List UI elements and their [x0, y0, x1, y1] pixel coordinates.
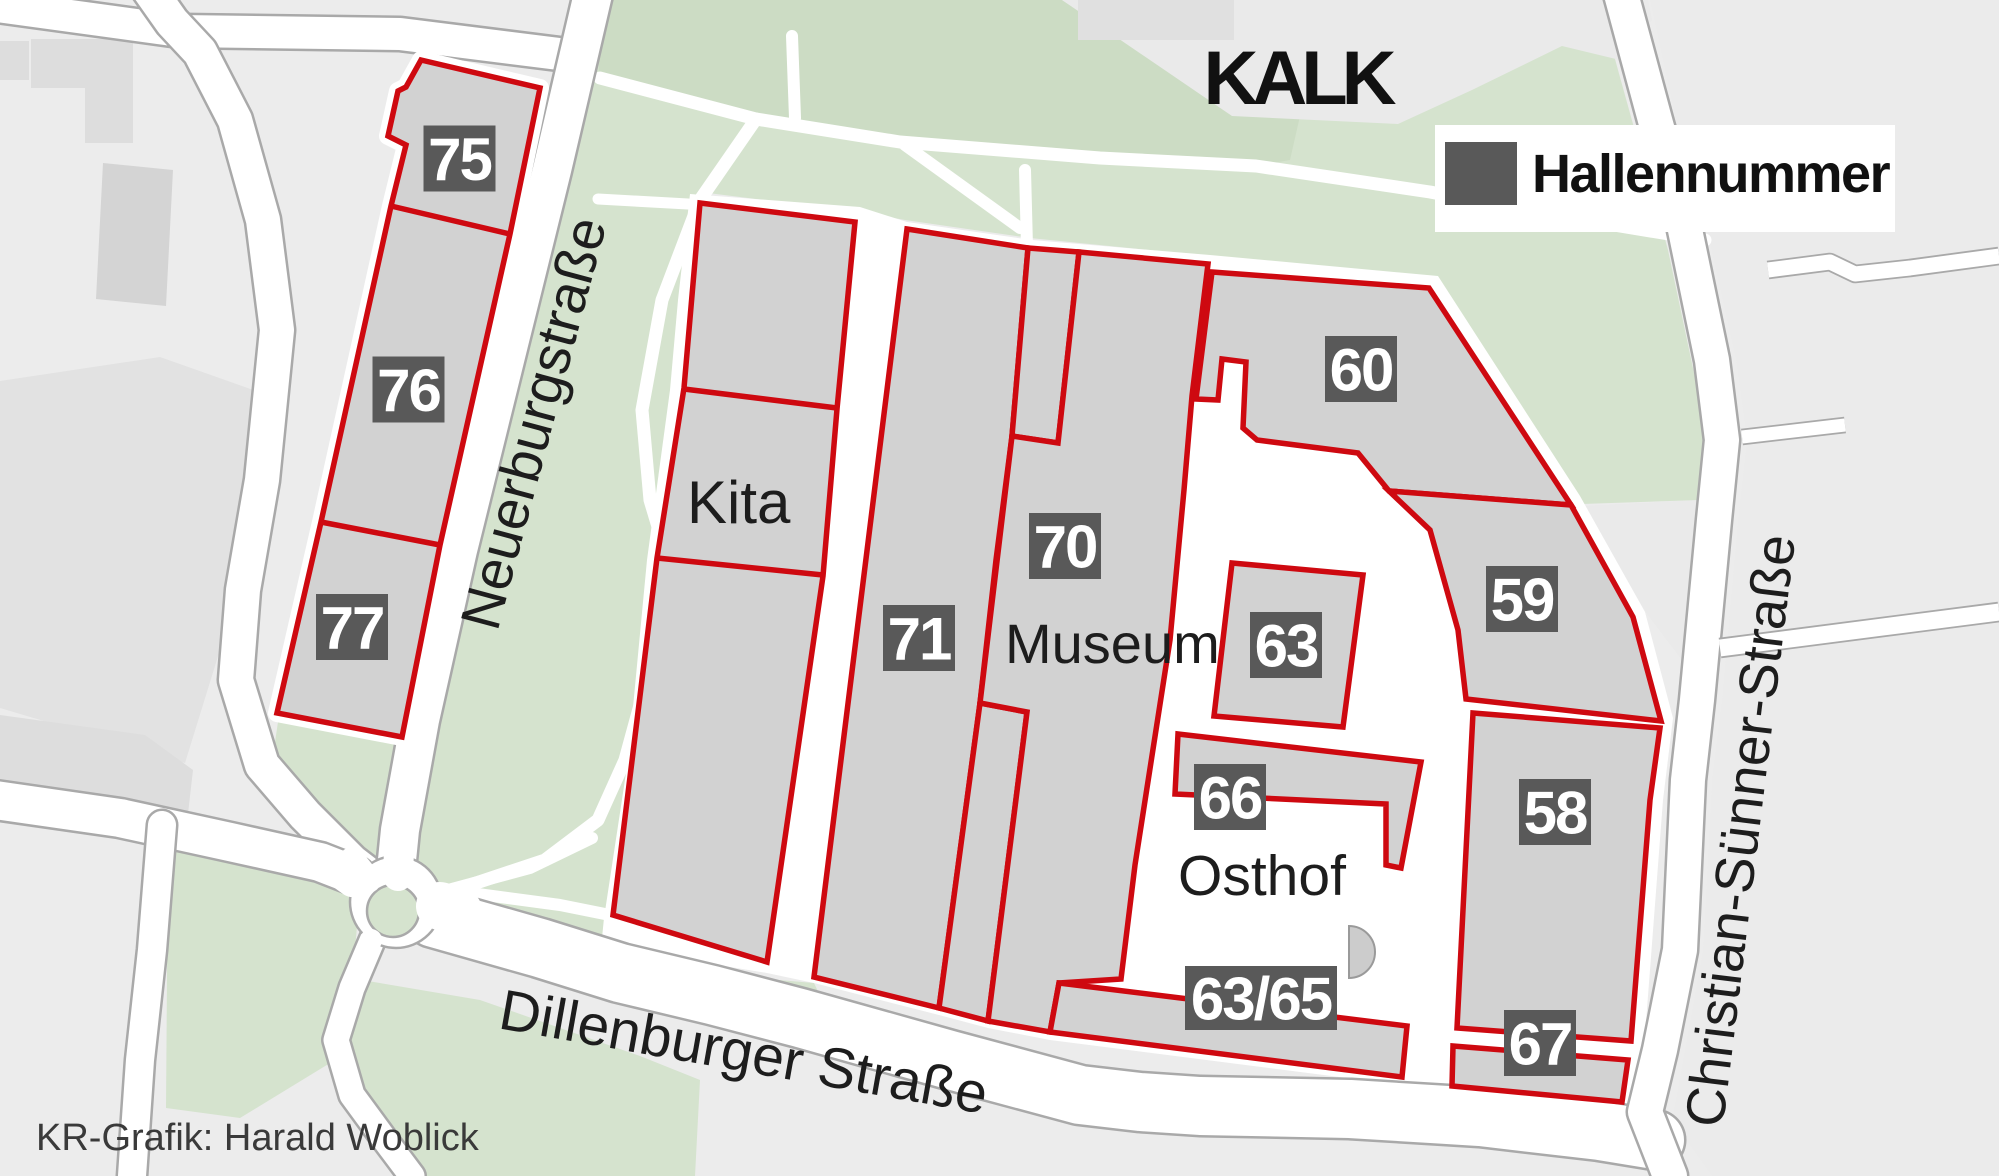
svg-text:63: 63 [1255, 613, 1318, 680]
svg-text:Kita: Kita [687, 469, 791, 536]
svg-text:77: 77 [321, 595, 384, 662]
svg-text:Osthof: Osthof [1178, 844, 1346, 908]
svg-text:63/65: 63/65 [1191, 966, 1332, 1033]
svg-text:58: 58 [1524, 780, 1587, 847]
svg-text:75: 75 [428, 126, 491, 193]
svg-text:70: 70 [1034, 514, 1097, 581]
svg-text:Hallennummer: Hallennummer [1532, 144, 1891, 204]
svg-text:67: 67 [1509, 1011, 1572, 1078]
svg-text:KR-Grafik: Harald Woblick: KR-Grafik: Harald Woblick [36, 1117, 480, 1159]
svg-text:60: 60 [1330, 337, 1393, 404]
svg-text:KALK: KALK [1203, 36, 1396, 121]
svg-text:71: 71 [888, 606, 951, 673]
svg-text:76: 76 [377, 357, 440, 424]
svg-text:66: 66 [1199, 765, 1262, 832]
svg-text:59: 59 [1491, 567, 1554, 634]
svg-text:Museum: Museum [1005, 612, 1220, 675]
